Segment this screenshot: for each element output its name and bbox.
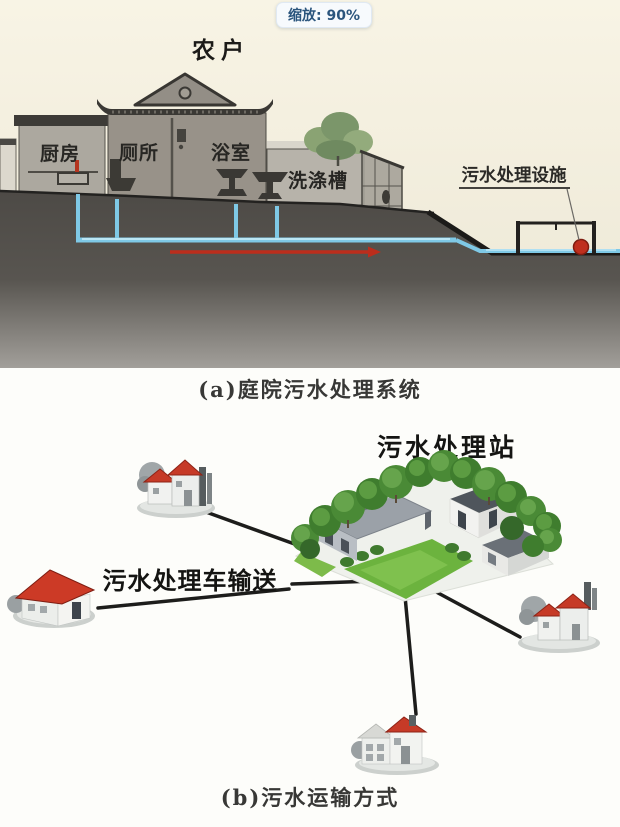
page: 缩放: 90% 农户 厨房 [0,0,620,827]
gable-emblem [180,88,191,99]
route-line-house4 [405,596,416,714]
chimney [409,715,416,726]
wash-sink-label: 洗涤槽 [288,169,348,192]
kitchen-building: 厨房 [14,115,109,198]
bathroom-label: 浴室 [211,141,251,164]
village-house-2 [7,570,95,628]
door [401,746,410,764]
caption-a: (a)庭院污水处理系统 [0,374,620,404]
farmhouse-title-label: 农户 [191,37,250,64]
zoom-level-text: 缩放: 90% [288,8,360,24]
toilet-label: 厕所 [119,142,159,164]
facility-label: 污水处理设施 [462,165,567,186]
boundary-wall [0,139,16,197]
village-house-4 [351,715,439,775]
village-house-3 [518,582,600,653]
outlet-dot [574,240,589,255]
diagram-b-transport: 污水处理站 [0,418,620,788]
kitchen-sink [58,173,88,184]
person-figure [382,190,390,204]
caption-b: (b)污水运输方式 [0,782,620,812]
kitchen-label: 厨房 [40,142,80,165]
village-house-1 [137,460,215,518]
route-line-house3 [427,587,520,637]
diagram-a-courtyard-system: 农户 厨房 [0,0,620,368]
treatment-station [291,450,562,601]
transport-route-label: 污水处理车输送 [103,567,278,595]
kitchen-roof [14,115,109,126]
door [72,602,81,619]
zoom-level-tooltip: 缩放: 90% [276,2,372,28]
